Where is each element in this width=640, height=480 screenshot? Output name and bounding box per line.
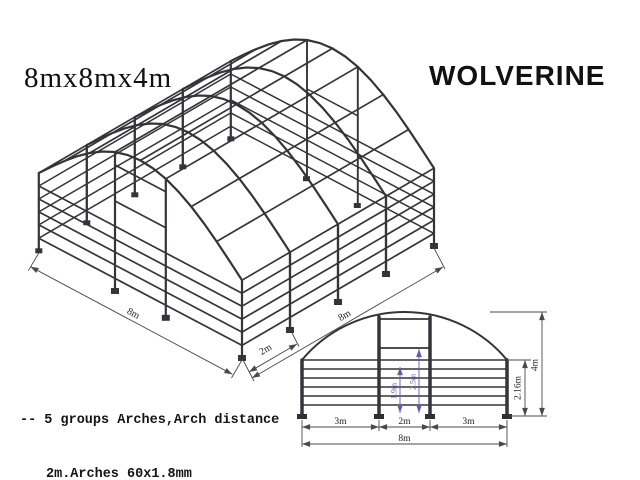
arches bbox=[39, 40, 434, 359]
elev-dim-2m-label: 2m bbox=[398, 417, 411, 427]
elevation-bottom-dimensions: 3m 2m 3m 8m bbox=[302, 417, 507, 447]
spec-note-arches-cont: 2m.Arches 60x1.8mm bbox=[20, 466, 279, 480]
spec-note-arches: -- 5 groups Arches,Arch distance bbox=[20, 412, 279, 430]
spec-notes: -- 5 groups Arches,Arch distance 2m.Arch… bbox=[20, 376, 279, 480]
elevation-height-dimensions: 2.16m 4m bbox=[490, 312, 547, 416]
elevation-inner-dimensions: 1.9m 2.5m bbox=[390, 349, 420, 413]
elev-dim-3m-right-label: 3m bbox=[462, 417, 475, 427]
front-elevation-drawing: 1.9m 2.5m 3m 2m 3m 8m 2.16m bbox=[297, 312, 547, 447]
elev-dim-inner-right-label: 2.5m bbox=[409, 373, 418, 390]
isometric-drawing: 8m 8m 2m bbox=[28, 40, 445, 382]
iso-dim-spacing-label: 2m bbox=[257, 342, 274, 358]
elevation-structure bbox=[297, 312, 512, 419]
iso-dim-right-label: 8m bbox=[336, 308, 353, 324]
blueprint-page: 8mx8mx4m WOLVERINE bbox=[0, 0, 640, 480]
elev-dim-8m-label: 8m bbox=[398, 434, 411, 444]
iso-dim-left-label: 8m bbox=[125, 306, 142, 322]
purlins bbox=[39, 40, 434, 280]
elev-dim-total-height-label: 4m bbox=[531, 358, 541, 371]
elev-dim-inner-left-label: 1.9m bbox=[390, 382, 399, 399]
elev-dim-3m-left-label: 3m bbox=[334, 417, 347, 427]
elev-dim-side-height-label: 2.16m bbox=[514, 375, 524, 400]
